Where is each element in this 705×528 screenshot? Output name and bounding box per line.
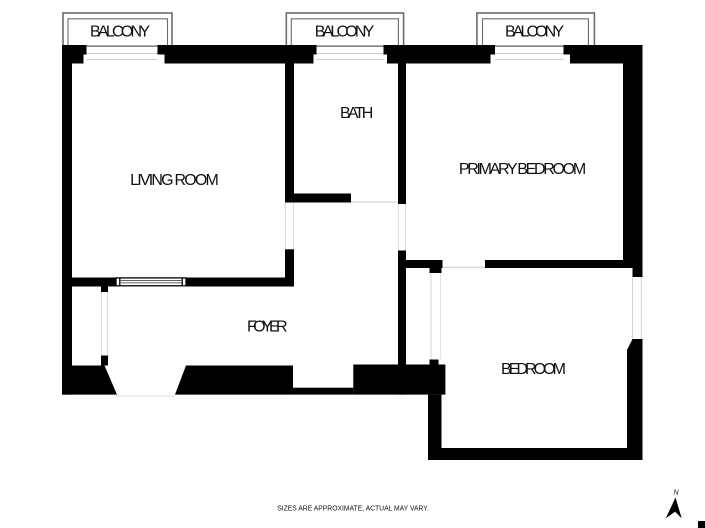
svg-text:LIVING ROOM: LIVING ROOM — [130, 172, 219, 189]
svg-text:BATH: BATH — [340, 105, 373, 122]
svg-text:BEDROOM: BEDROOM — [501, 361, 566, 378]
svg-text:PRIMARY BEDROOM: PRIMARY BEDROOM — [459, 161, 586, 178]
svg-text:BALCONY: BALCONY — [90, 24, 150, 41]
svg-text:BALCONY: BALCONY — [505, 24, 564, 41]
svg-text:BALCONY: BALCONY — [315, 24, 375, 41]
svg-text:FOYER: FOYER — [247, 319, 288, 336]
svg-text:SIZES ARE APPROXIMATE, ACTUAL: SIZES ARE APPROXIMATE, ACTUAL MAY VARY. — [277, 505, 429, 512]
